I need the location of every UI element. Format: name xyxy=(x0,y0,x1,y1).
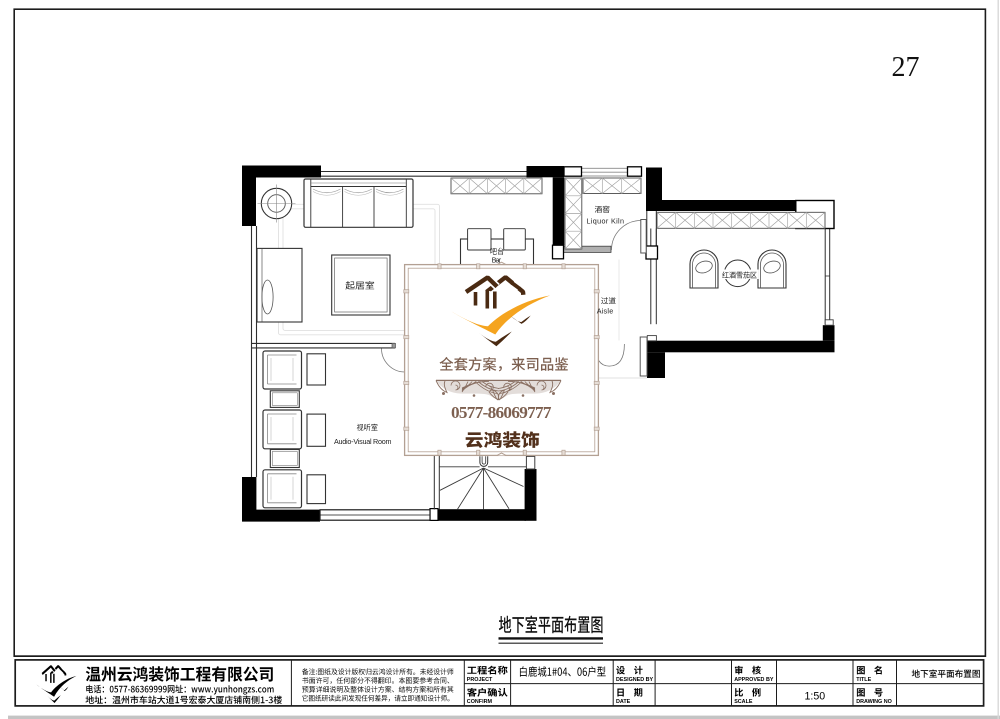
svg-text:0577-86069777: 0577-86069777 xyxy=(451,403,552,422)
svg-text:DATE: DATE xyxy=(616,699,631,705)
svg-text:27: 27 xyxy=(892,52,920,83)
svg-text:Aisle: Aisle xyxy=(597,306,614,315)
svg-text:PROJECT: PROJECT xyxy=(467,677,493,683)
svg-text:TITLE: TITLE xyxy=(856,677,871,683)
svg-text:APPROVED BY: APPROVED BY xyxy=(734,677,774,683)
svg-text:1:50: 1:50 xyxy=(804,690,825,702)
svg-text:CONFIRM: CONFIRM xyxy=(467,699,493,705)
svg-text:Liquor Kiln: Liquor Kiln xyxy=(587,217,625,226)
svg-text:SCALE: SCALE xyxy=(734,699,753,705)
svg-text:Bar: Bar xyxy=(492,255,502,264)
svg-text:Audio-Visual Room: Audio-Visual Room xyxy=(334,437,392,446)
svg-text:DRAWING NO: DRAWING NO xyxy=(856,699,892,705)
svg-text:DESIGNED BY: DESIGNED BY xyxy=(616,677,654,683)
